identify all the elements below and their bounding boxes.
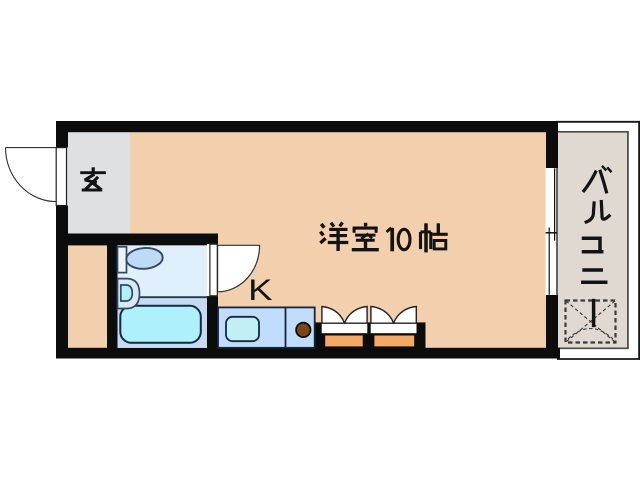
svg-text:K: K <box>248 274 272 307</box>
